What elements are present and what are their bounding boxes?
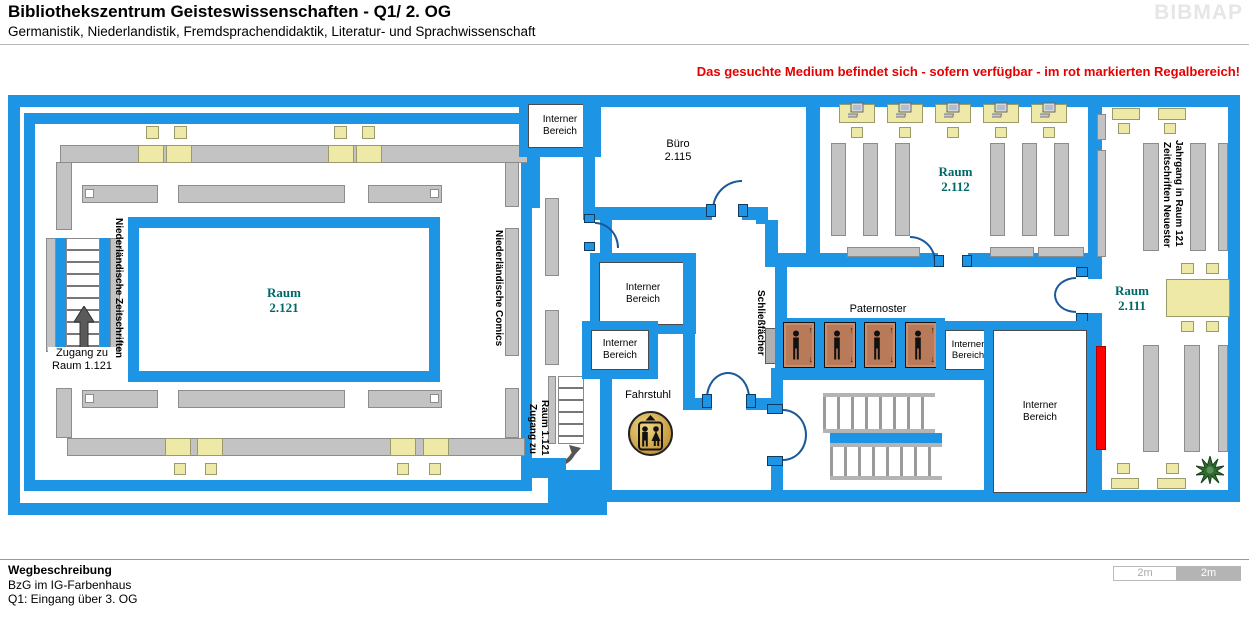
paternoster-cabin: ↑ ↓	[864, 322, 896, 368]
shelf	[847, 247, 920, 257]
computer-icon	[1040, 102, 1058, 118]
door-stub	[738, 204, 748, 217]
wall	[24, 113, 35, 491]
scale-segment-dark: 2m	[1176, 566, 1241, 581]
wall	[527, 148, 540, 208]
shelf	[178, 390, 345, 408]
table	[165, 438, 191, 456]
shelf	[505, 388, 519, 438]
up-arrow-icon: ↑	[931, 326, 936, 335]
interner-line1: Interner	[603, 338, 637, 350]
table	[1112, 108, 1140, 120]
wall	[583, 95, 595, 218]
door-arc	[1054, 277, 1076, 295]
shelf	[990, 247, 1034, 257]
table	[390, 438, 416, 456]
stair-caption-line1: Zugang zu	[48, 347, 116, 360]
footer-heading: Wegbeschreibung	[8, 563, 112, 577]
door-arc	[595, 222, 619, 248]
stair-landing	[830, 433, 942, 443]
chair	[174, 463, 186, 475]
door-stub	[767, 456, 783, 466]
wall	[8, 95, 20, 515]
wall	[24, 480, 532, 491]
wall	[8, 503, 607, 515]
interner-line2: Bereich	[543, 126, 577, 138]
person-icon	[911, 330, 925, 360]
shelf	[178, 185, 345, 203]
chair	[851, 127, 863, 138]
computer-desk	[839, 104, 875, 123]
shelf	[1190, 143, 1206, 251]
door-stub	[584, 242, 595, 251]
table	[1157, 478, 1186, 489]
room-2121-label: Raum 2.121	[267, 285, 301, 315]
chair	[1164, 123, 1176, 134]
computer-icon	[848, 102, 866, 118]
shelf	[1054, 143, 1069, 236]
paternoster-cabin: ↑ ↓	[905, 322, 937, 368]
door-arc	[783, 409, 807, 435]
red-hint-text: Das gesuchte Medium befindet sich - sofe…	[697, 64, 1240, 79]
interner-line2: Bereich	[603, 350, 637, 362]
shelf	[1184, 345, 1200, 452]
header-divider	[0, 44, 1249, 45]
chair	[429, 463, 441, 475]
interner-bereich-box: Interner Bereich	[591, 330, 649, 370]
computer-icon	[992, 102, 1010, 118]
shelf-notch	[430, 189, 439, 198]
shelf	[1218, 143, 1228, 251]
door-stub	[702, 394, 712, 408]
room-2111-name: Raum	[1104, 283, 1160, 298]
staircase-lower	[830, 443, 942, 480]
shelf	[1218, 345, 1228, 452]
stair-caption-mid-line2: Raum 1.121	[539, 400, 550, 456]
wall	[683, 253, 695, 410]
wall	[595, 490, 1240, 502]
shelf-notch	[85, 189, 94, 198]
highlighted-shelf	[1096, 346, 1106, 450]
shelf	[863, 143, 878, 236]
interner-line1: Interner	[626, 282, 660, 294]
footer-line1: BzG im IG-Farbenhaus	[8, 578, 131, 592]
interner-line1: Interner	[543, 114, 577, 126]
table	[423, 438, 449, 456]
wall	[771, 460, 783, 502]
door-stub	[1076, 267, 1088, 277]
shelf	[545, 310, 559, 365]
chair	[1181, 263, 1194, 274]
stair-caption-left: Zugang zu Raum 1.121	[48, 347, 116, 373]
chair	[1043, 127, 1055, 138]
person-icon	[789, 330, 803, 360]
plant-icon	[1196, 456, 1224, 484]
shelf	[1038, 247, 1084, 257]
staircase-middle	[558, 376, 584, 444]
wall	[24, 113, 532, 124]
wall	[806, 95, 820, 267]
label-niederlaendische-comics: Niederländische Comics	[493, 230, 504, 346]
chair	[205, 463, 217, 475]
stair-caption-line2: Raum 1.121	[48, 360, 116, 373]
page-subtitle: Germanistik, Niederlandistik, Fremdsprac…	[8, 24, 535, 39]
room-buero-label: Büro 2.115	[640, 138, 716, 164]
bibmap-logo: BIBMAP	[1154, 1, 1243, 25]
room-2121-number: 2.121	[267, 300, 301, 315]
bibmap-page: Bibliothekszentrum Geisteswissenschaften…	[0, 0, 1249, 618]
interner-line1: Interner	[1023, 400, 1057, 412]
computer-desk	[1031, 104, 1067, 123]
shelf-notch	[85, 394, 94, 403]
door-stub	[706, 204, 716, 217]
room-2112-label: Raum 2.112	[908, 164, 1003, 194]
shelf	[505, 228, 519, 356]
interner-line2: Bereich	[1023, 412, 1057, 424]
table	[197, 438, 223, 456]
chair	[146, 126, 159, 139]
chair	[1181, 321, 1194, 332]
down-arrow-icon: ↓	[850, 355, 855, 364]
interner-line2: Bereich	[952, 350, 984, 361]
shelf	[67, 438, 525, 456]
staircase-upper	[823, 393, 935, 433]
shelf	[46, 238, 56, 352]
person-icon	[830, 330, 844, 360]
paternoster-label: Paternoster	[826, 303, 930, 316]
door-stub	[767, 404, 783, 414]
wall	[548, 470, 607, 503]
chair	[995, 127, 1007, 138]
chair	[362, 126, 375, 139]
room-2112-name: Raum	[908, 164, 1003, 179]
label-niederlaendische-zeitschriften: Niederländische Zeitschriften	[113, 218, 124, 358]
shelf	[1097, 114, 1106, 140]
door-arc	[1054, 295, 1076, 313]
shelf-notch	[430, 394, 439, 403]
door-stub	[934, 255, 944, 267]
computer-icon	[944, 102, 962, 118]
up-arrow-icon: ↑	[809, 326, 814, 335]
door-stub	[746, 394, 756, 408]
chair	[174, 126, 187, 139]
chair	[1166, 463, 1179, 474]
table	[1111, 478, 1139, 489]
interner-bereich-box: Interner Bereich	[599, 262, 687, 325]
table	[1166, 279, 1230, 317]
up-arrow-icon: ↑	[850, 326, 855, 335]
buero-number: 2.115	[640, 151, 716, 164]
shelf	[990, 143, 1005, 236]
computer-desk	[935, 104, 971, 123]
scale-segment-light: 2m	[1113, 566, 1177, 581]
shelf	[1143, 345, 1159, 452]
room-2111-label: Raum 2.111	[1104, 283, 1160, 313]
shelf	[895, 143, 910, 236]
shelf	[831, 143, 846, 236]
shelf	[56, 388, 72, 438]
interner-bereich-mid2: Interner Bereich	[582, 321, 658, 379]
interner-bereich-bottom: Interner Bereich	[984, 321, 1096, 502]
table	[356, 145, 382, 163]
shelf	[1022, 143, 1037, 236]
table	[1158, 108, 1186, 120]
paternoster-cabin: ↑ ↓	[824, 322, 856, 368]
shelf	[545, 198, 559, 276]
room-2121-name: Raum	[267, 285, 301, 300]
label-jahrgang-raum-121: Jahrgang in Raum 121	[1173, 140, 1184, 247]
computer-desk	[983, 104, 1019, 123]
computer-desk	[887, 104, 923, 123]
room-2111-number: 2.111	[1104, 298, 1160, 313]
shelf	[60, 145, 530, 163]
chair	[1206, 263, 1219, 274]
label-zeitschriften-neuester: Zeitschriften Neuester	[1161, 142, 1172, 248]
wall	[583, 207, 712, 220]
door-stub	[962, 255, 972, 267]
stair-rail	[100, 238, 110, 352]
door-arc	[783, 435, 807, 461]
chair	[899, 127, 911, 138]
chair	[397, 463, 409, 475]
up-arrow-icon: ↑	[890, 326, 895, 335]
page-title: Bibliothekszentrum Geisteswissenschaften…	[8, 2, 451, 22]
interner-line1: Interner	[952, 339, 985, 350]
stair-rail	[56, 238, 66, 352]
shelf	[56, 162, 72, 230]
down-arrow-icon: ↓	[890, 355, 895, 364]
room-2112-number: 2.112	[908, 179, 1003, 194]
table	[138, 145, 164, 163]
interner-bereich-box: Interner Bereich	[993, 330, 1087, 493]
chair	[1206, 321, 1219, 332]
down-arrow-icon: ↓	[931, 355, 936, 364]
table	[166, 145, 192, 163]
chair	[334, 126, 347, 139]
buero-name: Büro	[640, 138, 716, 151]
room-2121: Raum 2.121	[128, 217, 440, 382]
map-scale: 2m 2m	[1113, 566, 1240, 580]
chair	[1117, 463, 1130, 474]
stair-caption-mid-line1: Zugang zu	[527, 404, 538, 454]
shelf	[1143, 143, 1159, 251]
up-arrow-icon	[74, 306, 94, 352]
elevator-icon	[627, 410, 674, 457]
chair	[947, 127, 959, 138]
shelf	[1097, 150, 1106, 257]
door-stub	[584, 214, 595, 223]
chair	[1118, 123, 1130, 134]
paternoster-cabin: ↑ ↓	[783, 322, 815, 368]
person-icon	[870, 330, 884, 360]
down-arrow-icon: ↓	[809, 355, 814, 364]
shelf	[505, 162, 519, 207]
footer-line2: Q1: Eingang über 3. OG	[8, 592, 137, 606]
footer-divider	[0, 559, 1249, 560]
table	[328, 145, 354, 163]
fahrstuhl-label: Fahrstuhl	[612, 389, 684, 402]
interner-line2: Bereich	[626, 294, 660, 306]
computer-icon	[896, 102, 914, 118]
